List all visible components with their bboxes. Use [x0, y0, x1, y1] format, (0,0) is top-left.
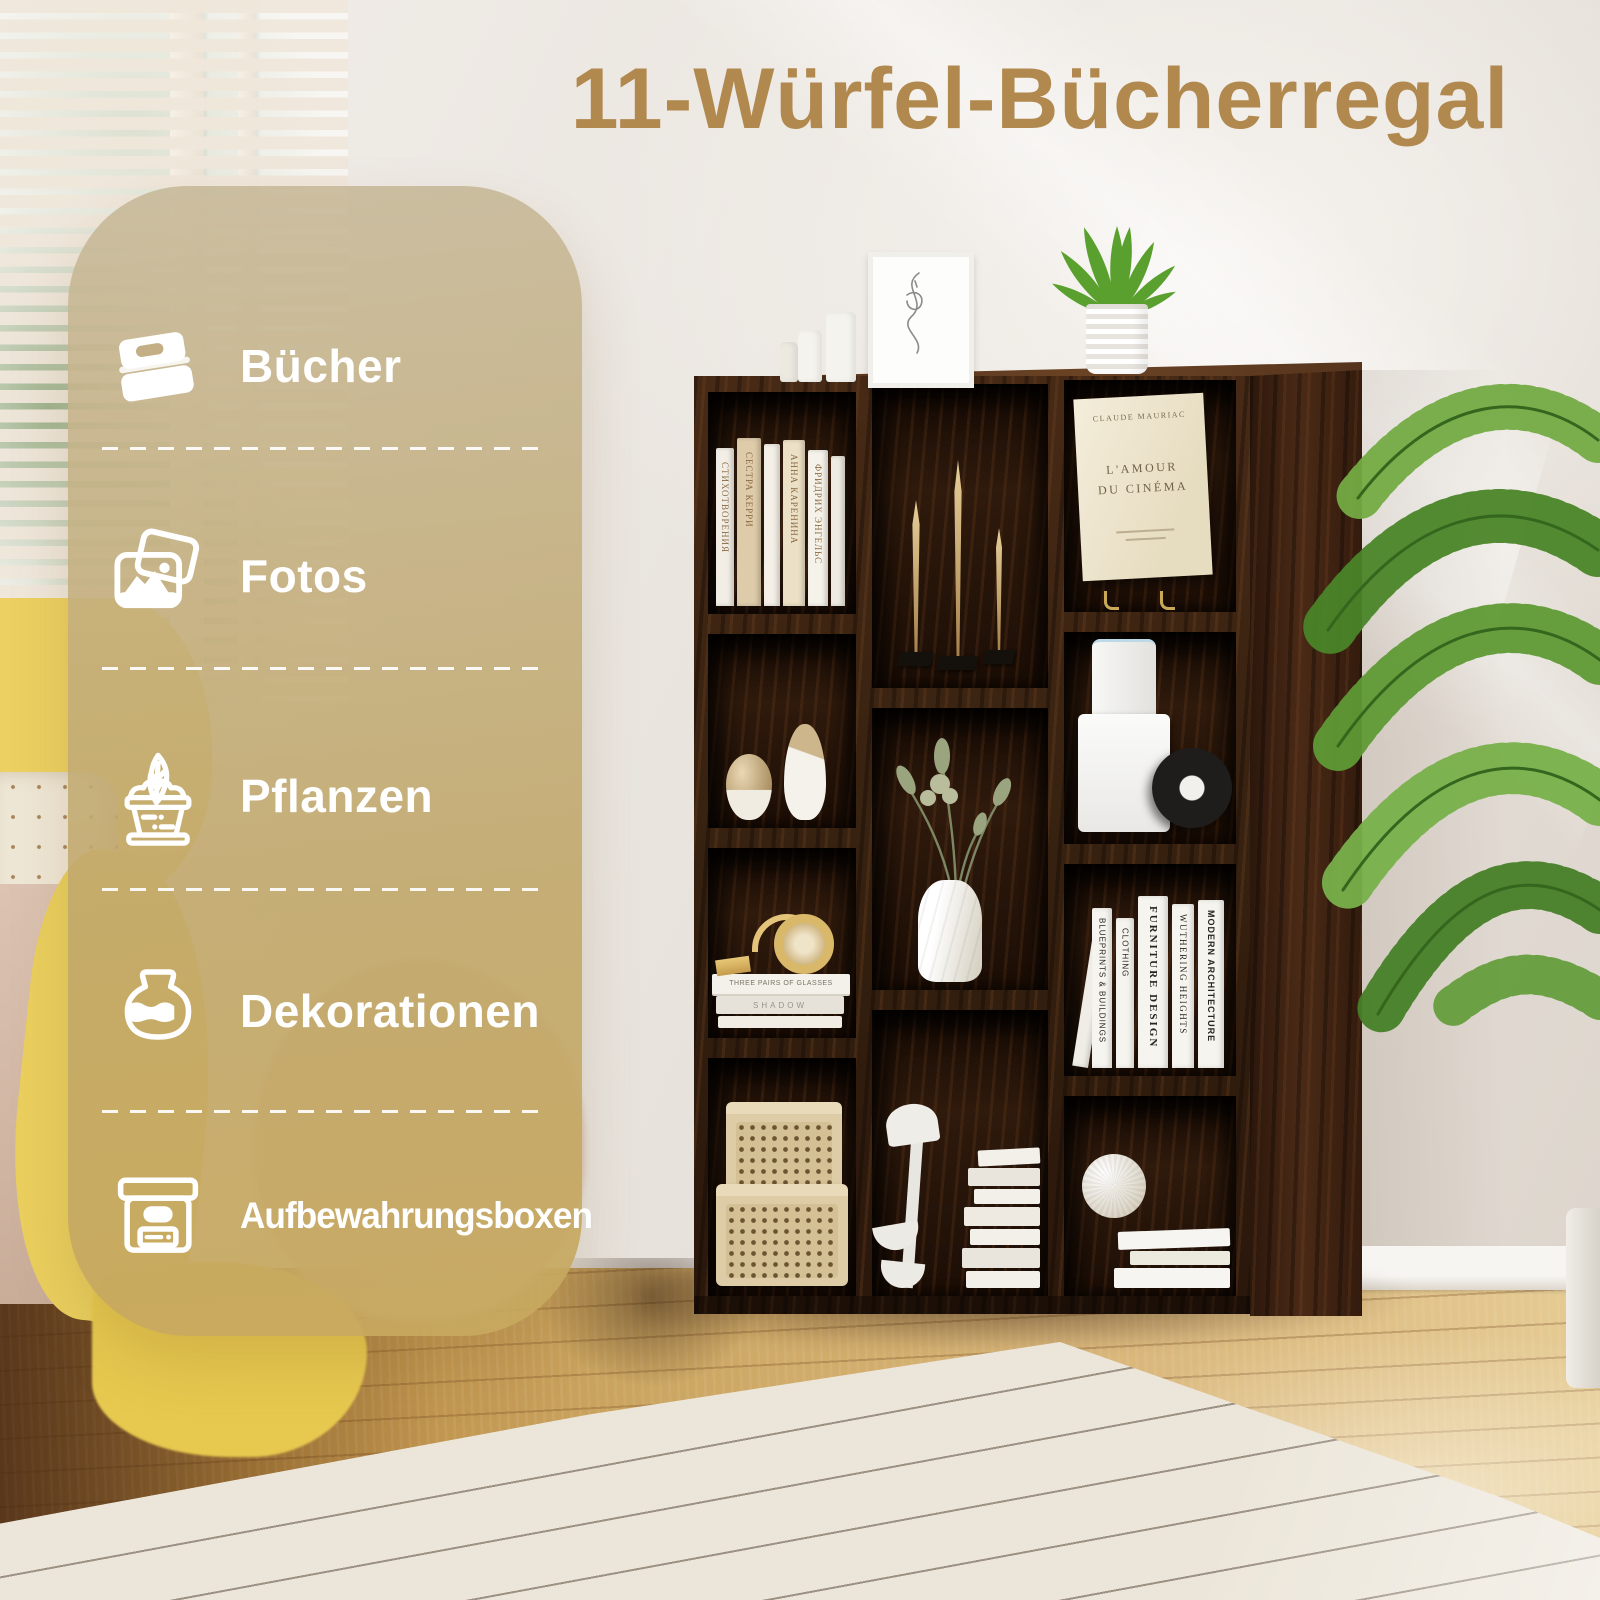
feature-item-books: Bücher — [68, 314, 582, 418]
book-spine — [764, 444, 780, 606]
photos-icon — [106, 524, 210, 628]
rattan-storage-box — [726, 1102, 842, 1196]
bookshelf: СТИХОТВОРЕНИЯ СЕСТРА КЕРРИ АННА КАРЕНИНА… — [694, 362, 1362, 1316]
storage-box-icon — [106, 1164, 210, 1268]
book-spine: WUTHERING HEIGHTS — [1172, 904, 1194, 1068]
palm-plant — [1296, 348, 1600, 1118]
white-speaker-top — [1092, 639, 1156, 716]
standing-books-row: BLUEPRINTS & BUILDINGS CLOTHING FURNITUR… — [1072, 896, 1224, 1068]
book-stand — [1104, 591, 1119, 610]
book-title: SHADOW — [716, 996, 844, 1010]
cube-middle-1 — [872, 384, 1048, 688]
book-spine: MODERN ARCHITECTURE — [1198, 900, 1224, 1068]
stacked-book: SHADOW — [716, 996, 844, 1014]
vase-icon — [106, 959, 210, 1063]
cube-left-1: СТИХОТВОРЕНИЯ СЕСТРА КЕРРИ АННА КАРЕНИНА… — [708, 392, 856, 614]
book-spine: СТИХОТВОРЕНИЯ — [716, 448, 734, 606]
product-marketing-image: СТИХОТВОРЕНИЯ СЕСТРА КЕРРИ АННА КАРЕНИНА… — [0, 0, 1600, 1600]
rattan-storage-box — [716, 1184, 848, 1286]
gold-vase — [726, 754, 772, 820]
cube-middle-2 — [872, 708, 1048, 990]
display-book-title: L'AMOUR — [1077, 458, 1208, 480]
book-spine-text: CLOTHING — [1121, 928, 1130, 977]
dashed-separator — [102, 667, 548, 670]
cube-right-3: BLUEPRINTS & BUILDINGS CLOTHING FURNITUR… — [1064, 864, 1236, 1076]
white-sculpture — [879, 1260, 925, 1290]
dashed-separator — [102, 1110, 548, 1113]
cube-middle-3 — [872, 1010, 1048, 1296]
display-book: CLAUDE MAURIAC L'AMOUR DU CINÉMA — [1073, 393, 1212, 582]
white-vase — [784, 724, 826, 820]
gold-figurine — [952, 460, 964, 656]
book-spine: ФРИДРИХ ЭНГЕЛЬС — [808, 450, 828, 606]
display-book-title: DU CINÉMA — [1078, 478, 1209, 500]
feature-item-decorations: Dekorationen — [68, 959, 582, 1063]
gold-figurine — [994, 528, 1004, 650]
feature-item-storage-boxes: Aufbewahrungsboxen — [68, 1164, 582, 1268]
book-spine-text: СТИХОТВОРЕНИЯ — [720, 462, 730, 553]
book-spine: АННА КАРЕНИНА — [783, 440, 805, 606]
headphones-earcup — [774, 914, 834, 974]
white-geometric-vase — [918, 880, 982, 982]
figurine-base — [936, 656, 977, 670]
plant-pot-icon — [106, 744, 210, 848]
cube-left-3: THREE PAIRS OF GLASSES SHADOW — [708, 848, 856, 1038]
book-row: СТИХОТВОРЕНИЯ СЕСТРА КЕРРИ АННА КАРЕНИНА… — [716, 438, 845, 606]
book-spine-text: СЕСТРА КЕРРИ — [744, 452, 754, 528]
display-book-author: CLAUDE MAURIAC — [1074, 409, 1204, 425]
book-spine: СЕСТРА КЕРРИ — [737, 438, 761, 606]
feature-panel: Bücher Fotos — [68, 186, 582, 1336]
feature-label: Pflanzen — [240, 744, 433, 848]
books-icon — [106, 314, 210, 418]
cube-left-2 — [708, 634, 856, 828]
stacked-white-books — [1114, 1230, 1230, 1288]
cube-right-1: CLAUDE MAURIAC L'AMOUR DU CINÉMA — [1064, 380, 1236, 612]
book-spine-text: ФРИДРИХ ЭНГЕЛЬС — [813, 464, 823, 564]
cube-right-4 — [1064, 1096, 1236, 1296]
book-spine: BLUEPRINTS & BUILDINGS — [1092, 908, 1112, 1068]
book-spine: CLOTHING — [1116, 918, 1134, 1068]
bookshelf-front: СТИХОТВОРЕНИЯ СЕСТРА КЕРРИ АННА КАРЕНИНА… — [694, 376, 1250, 1314]
book-spine — [831, 456, 845, 606]
feature-item-photos: Fotos — [68, 524, 582, 628]
book-spine-text: BLUEPRINTS & BUILDINGS — [1098, 918, 1107, 1043]
book-spine: FURNITURE DESIGN — [1138, 896, 1168, 1068]
book-spine-text: АННА КАРЕНИНА — [789, 454, 799, 544]
book-spine-text: FURNITURE DESIGN — [1147, 906, 1159, 1048]
floor-sunlight-patch — [1040, 1328, 1600, 1600]
vinyl-disc — [1152, 748, 1232, 828]
dashed-separator — [102, 888, 548, 891]
gold-figurine — [910, 500, 922, 652]
page-title: 11-Würfel-Bücherregal — [480, 50, 1600, 149]
stacked-book: THREE PAIRS OF GLASSES — [712, 974, 850, 994]
feature-item-plants: Pflanzen — [68, 744, 582, 848]
dashed-separator — [102, 447, 548, 450]
stacked-white-books — [962, 1149, 1040, 1288]
book-spine-text: WUTHERING HEIGHTS — [1178, 914, 1188, 1035]
display-book-imprint-line — [1126, 537, 1166, 541]
book-stand — [1160, 591, 1175, 610]
figurine-base — [896, 652, 933, 666]
book-title: THREE PAIRS OF GLASSES — [712, 974, 850, 987]
stacked-book — [718, 1016, 842, 1028]
plant-sprigs — [876, 732, 1026, 904]
feature-label: Bücher — [240, 314, 401, 418]
figurine-base — [982, 650, 1015, 664]
cube-right-2 — [1064, 632, 1236, 844]
feature-label: Aufbewahrungsboxen — [240, 1164, 592, 1268]
feature-label: Dekorationen — [240, 959, 540, 1063]
feature-label: Fotos — [240, 524, 368, 628]
cube-left-4 — [708, 1058, 856, 1296]
display-book-imprint-line — [1116, 528, 1174, 533]
palm-planter — [1566, 1208, 1600, 1388]
white-sculpture — [883, 1101, 940, 1148]
ribbed-sphere-decor — [1082, 1154, 1146, 1218]
book-spine-text: MODERN ARCHITECTURE — [1206, 910, 1216, 1042]
